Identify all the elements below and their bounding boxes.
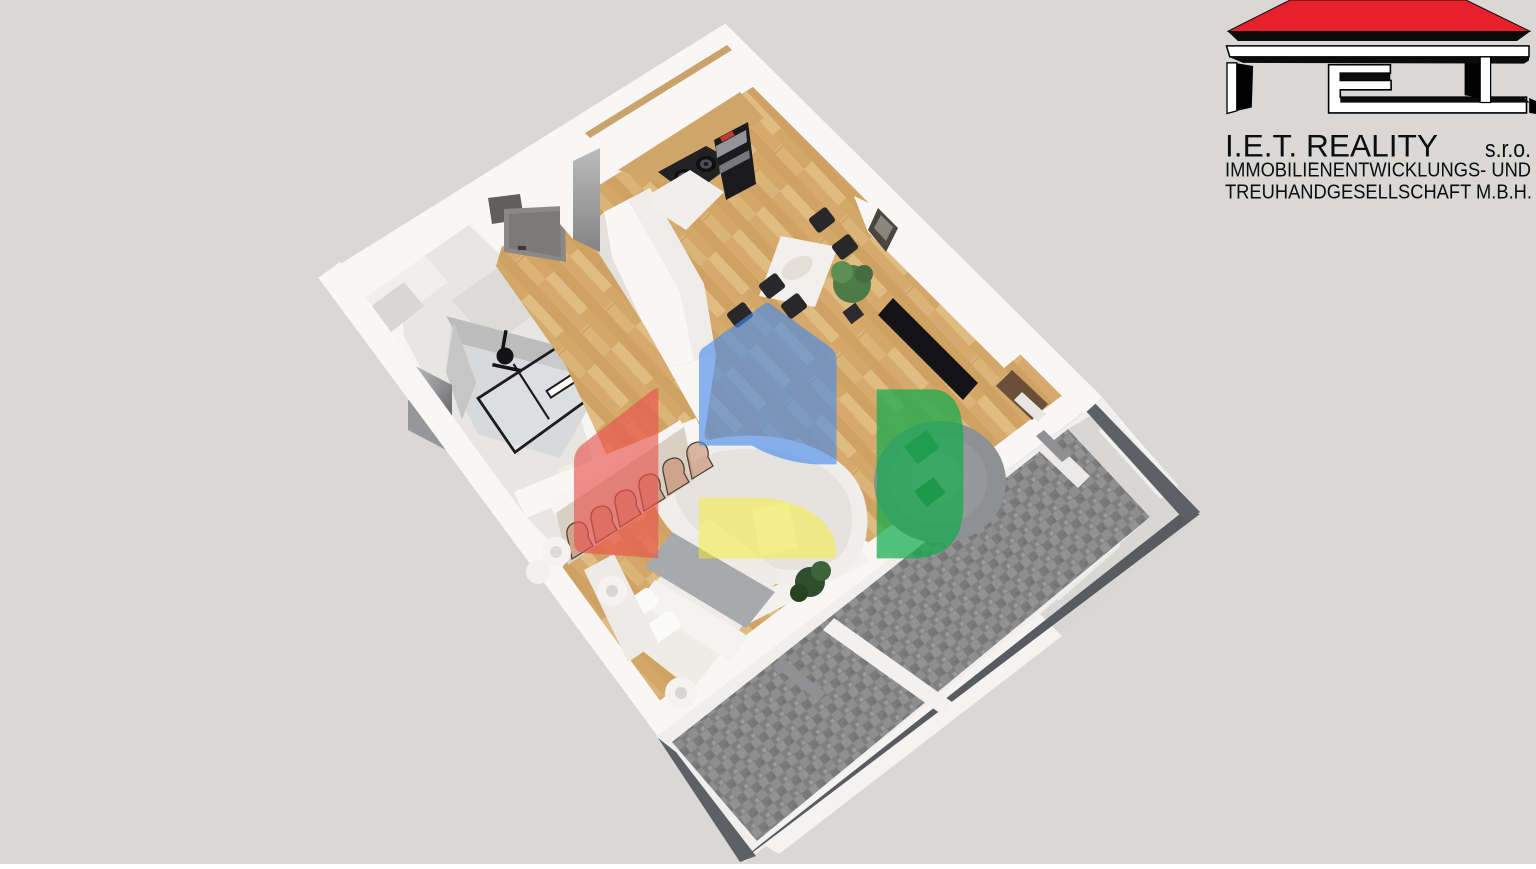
svg-text:TREUHANDGESELLSCHAFT M.B.H.: TREUHANDGESELLSCHAFT M.B.H. bbox=[1225, 182, 1532, 204]
svg-text:IMMOBILIENENTWICKLUNGS- UND: IMMOBILIENENTWICKLUNGS- UND bbox=[1225, 160, 1531, 182]
svg-text:I.E.T. REALITY: I.E.T. REALITY bbox=[1225, 128, 1438, 164]
